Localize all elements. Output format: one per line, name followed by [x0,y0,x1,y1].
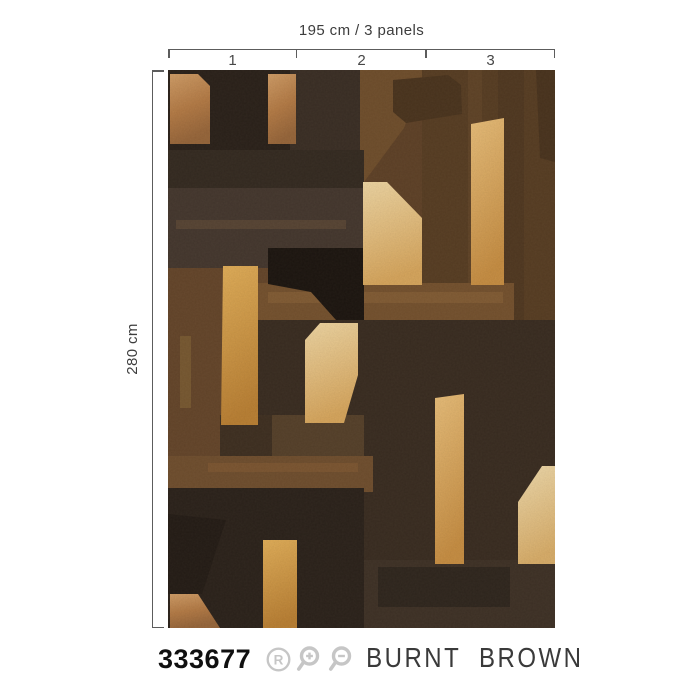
wallpaper-preview-image [168,70,555,628]
wallpaper-svg [168,70,555,628]
icon-row: R [265,645,356,673]
product-footer: 333677 R BURNT BROWN [158,643,584,675]
bracket-tick [153,70,164,72]
product-sheet: 195 cm / 3 panels 1 2 3 280 cm [0,0,700,700]
repeat-badge-icon: R [265,646,292,673]
panel-number-1: 1 [168,52,297,69]
product-colorway-name: BURNT BROWN [366,643,583,675]
product-sku: 333677 [158,644,251,675]
panel-number-2: 2 [297,52,426,69]
zoom-in-icon[interactable] [296,645,324,673]
zoom-out-icon[interactable] [328,645,356,673]
panel-number-3: 3 [426,52,555,69]
bracket-tick [153,627,164,629]
width-dimension-label: 195 cm / 3 panels [168,22,555,39]
height-measure-bracket [152,70,165,628]
height-dimension-label: 280 cm [124,309,142,389]
repeat-badge-letter: R [274,652,284,667]
texture-grain-light [168,70,555,628]
panel-numbers: 1 2 3 [168,52,555,69]
